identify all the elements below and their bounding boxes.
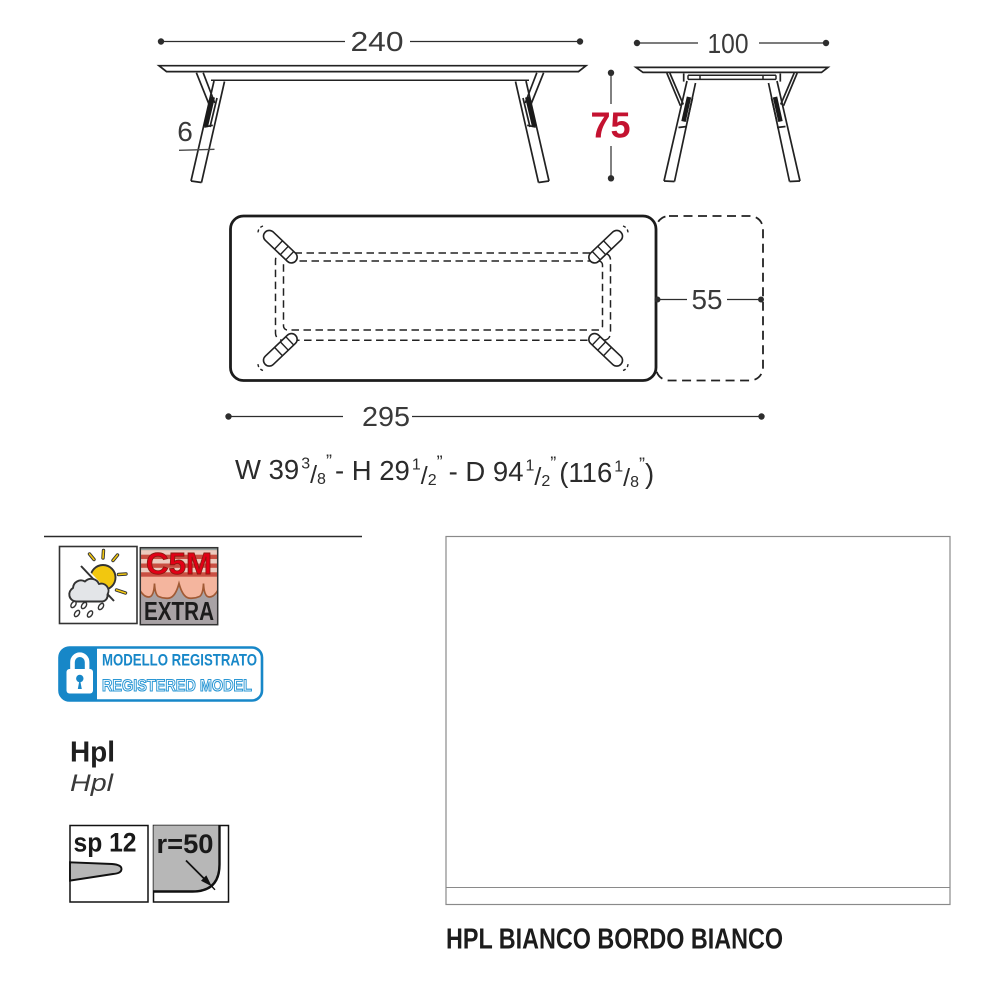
svg-text:Hpl: Hpl bbox=[70, 737, 115, 769]
svg-text:295: 295 bbox=[362, 401, 410, 432]
svg-text:55: 55 bbox=[692, 284, 723, 315]
svg-text:Hpl: Hpl bbox=[70, 770, 114, 797]
svg-text:HPL BIANCO BORDO BIANCO: HPL BIANCO BORDO BIANCO bbox=[446, 924, 783, 956]
svg-text:6: 6 bbox=[177, 116, 193, 147]
svg-text:100: 100 bbox=[708, 28, 749, 59]
svg-text:75: 75 bbox=[590, 105, 630, 146]
svg-text:C5M: C5M bbox=[146, 546, 212, 581]
svg-text:240: 240 bbox=[351, 26, 404, 57]
svg-text:W 393/8”- H 291/2”- D 941/2”(1: W 393/8”- H 291/2”- D 941/2”(1161/8”) bbox=[235, 452, 654, 493]
svg-text:REGISTERED MODEL: REGISTERED MODEL bbox=[102, 676, 252, 695]
svg-text:r=50: r=50 bbox=[157, 829, 214, 859]
svg-text:EXTRA: EXTRA bbox=[144, 596, 214, 626]
svg-text:MODELLO REGISTRATO: MODELLO REGISTRATO bbox=[102, 651, 257, 670]
svg-text:sp 12: sp 12 bbox=[74, 828, 137, 858]
